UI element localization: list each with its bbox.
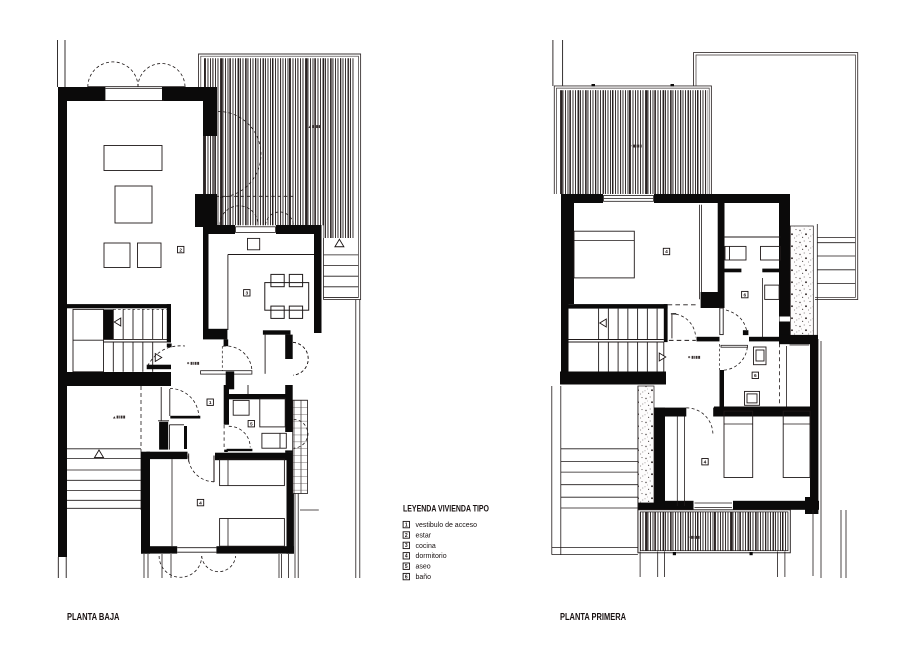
svg-text:dormitorio: dormitorio xyxy=(416,553,447,560)
svg-text:1: 1 xyxy=(209,400,212,406)
svg-text:cocina: cocina xyxy=(416,543,436,550)
svg-text:4: 4 xyxy=(199,500,202,506)
svg-text:PLANTA BAJA: PLANTA BAJA xyxy=(67,612,120,623)
svg-text:1: 1 xyxy=(405,522,408,528)
svg-text:4: 4 xyxy=(704,459,707,465)
svg-text:vestibulo de acceso: vestibulo de acceso xyxy=(416,522,478,529)
svg-text:6: 6 xyxy=(754,373,757,379)
svg-text:LEYENDA VIVIENDA TIPO: LEYENDA VIVIENDA TIPO xyxy=(403,504,489,515)
svg-text:aseo: aseo xyxy=(416,564,431,571)
svg-text:5: 5 xyxy=(405,564,408,570)
svg-text:estar: estar xyxy=(416,532,432,539)
svg-text:3: 3 xyxy=(405,543,408,549)
svg-text:6: 6 xyxy=(405,574,408,580)
svg-text:4: 4 xyxy=(405,554,408,560)
svg-text:2: 2 xyxy=(179,247,182,253)
svg-text:6: 6 xyxy=(743,292,746,298)
svg-text:PLANTA PRIMERA: PLANTA PRIMERA xyxy=(560,612,626,623)
svg-text:baño: baño xyxy=(416,574,432,581)
svg-text:4: 4 xyxy=(665,249,668,255)
svg-text:5: 5 xyxy=(250,421,253,427)
svg-text:3: 3 xyxy=(245,291,248,297)
svg-text:2: 2 xyxy=(405,533,408,539)
